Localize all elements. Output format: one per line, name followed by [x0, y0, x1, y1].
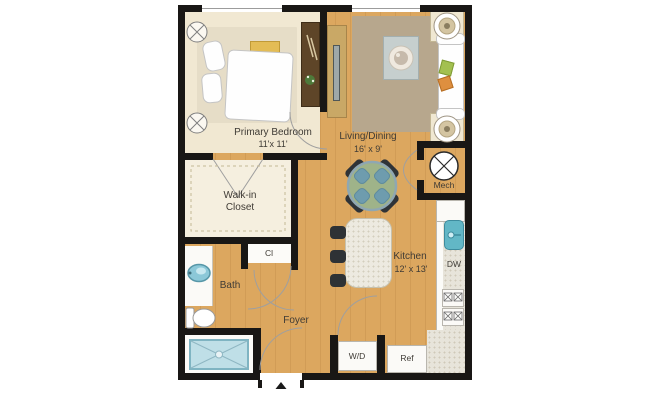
wall-mech-top [417, 141, 472, 148]
stove-top [442, 289, 464, 307]
kitchen-counter-corner [427, 330, 465, 373]
bar-stool [330, 226, 346, 239]
wall-mech-left-a [417, 148, 424, 160]
bath-vanity [185, 246, 213, 306]
kitchen-sink [444, 220, 464, 250]
coffee-table [383, 36, 419, 80]
wall-bedroom-living [320, 12, 327, 112]
wall-bottom-left [178, 373, 260, 380]
bar-stool [330, 274, 346, 287]
dishwasher-label: DW [447, 260, 461, 269]
coat-closet-label: Cl [265, 249, 273, 258]
dresser [301, 22, 320, 107]
bedroom-dims: 11'x 11' [258, 140, 287, 150]
closet-label-1: Walk-in [224, 190, 257, 201]
wall-bedroom-bottom-a [185, 153, 213, 160]
entry-jamb-right [300, 380, 304, 388]
entry-jamb-left [258, 380, 262, 388]
washer-dryer-label: W/D [349, 352, 366, 361]
kitchen-dims: 12' x 13' [395, 265, 428, 275]
stove-bottom [442, 308, 464, 326]
closet-label-2: Closet [226, 202, 254, 213]
mech-label: Mech [434, 181, 455, 190]
bar-stool [330, 250, 346, 263]
bath-label: Bath [220, 280, 241, 291]
sofa [438, 35, 464, 118]
living-window [352, 5, 420, 12]
wall-closet-right [291, 160, 298, 244]
wall-left [178, 5, 185, 380]
kitchen-label: Kitchen [393, 251, 426, 262]
wall-bedroom-bottom-b [263, 153, 327, 160]
shower-pan [189, 339, 249, 370]
foyer-label: Foyer [283, 315, 309, 326]
wall-shower-top [185, 328, 253, 335]
kitchen-island [345, 218, 392, 288]
floor-plan: Primary Bedroom 11'x 11' Living/Dining 1… [178, 5, 472, 397]
bed-duvet [224, 49, 294, 122]
wall-wd-right [377, 335, 385, 373]
bedroom-window [202, 5, 282, 12]
wall-closet-bottom [185, 237, 291, 244]
wall-bath-right [291, 244, 298, 270]
bedroom-label: Primary Bedroom [234, 127, 312, 138]
wall-bottom-right [302, 373, 472, 380]
refrigerator-label: Ref [400, 354, 413, 363]
entry-marker-icon [276, 382, 287, 389]
floor-plan-image: Primary Bedroom 11'x 11' Living/Dining 1… [0, 0, 652, 416]
counter-section [436, 200, 465, 222]
wall-mech-bottom [417, 193, 472, 200]
sofa-armrest [436, 33, 465, 45]
wall-shower-right [253, 328, 261, 373]
tv [333, 45, 340, 101]
wall-wd-left [330, 335, 338, 373]
living-dims: 16' x 9' [354, 145, 382, 155]
wall-coat-closet-stub [241, 237, 248, 269]
bed-pillow [201, 72, 224, 104]
sofa-armrest [436, 108, 465, 120]
living-label: Living/Dining [339, 131, 396, 142]
